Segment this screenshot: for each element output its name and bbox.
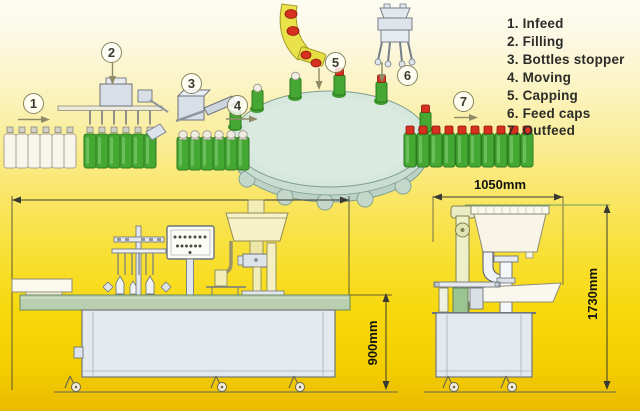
arrow-capping — [316, 68, 323, 90]
arrow-infeed — [18, 116, 50, 123]
filled-bottles — [84, 127, 156, 168]
legend-item-bottles-stopper: 3. Bottles stopper — [507, 51, 625, 69]
step-marker-3: 3 — [181, 73, 202, 94]
side-view-main-machine: 900mm — [12, 196, 398, 392]
production-line-diagram: 900mm 1050mm — [0, 0, 640, 411]
control-panel — [167, 226, 214, 296]
step-marker-7: 7 — [453, 91, 474, 112]
legend-item-capping: 5. Capping — [507, 87, 625, 105]
cap-chute — [280, 4, 326, 67]
dimension-1050mm-label: 1050mm — [474, 177, 526, 192]
step-marker-1: 1 — [23, 93, 44, 114]
filling-nozzles — [103, 226, 171, 296]
dimension-1730mm: 1730mm — [585, 204, 611, 390]
feeder-cabinet — [432, 313, 536, 377]
dimension-900mm-label: 900mm — [365, 321, 380, 366]
cap-feeder-machine — [375, 4, 415, 67]
legend-item-outfeed: 7. Outfeed — [507, 122, 625, 140]
machine-cabinet — [74, 310, 335, 377]
dimension-900mm: 900mm — [350, 293, 392, 390]
capping-unit — [206, 200, 288, 296]
legend-item-moving: 4. Moving — [507, 69, 625, 87]
step-marker-2: 2 — [101, 42, 122, 63]
step-marker-6: 6 — [397, 65, 418, 86]
legend-item-infeed: 1. Infeed — [507, 15, 625, 33]
legend-item-filling: 2. Filling — [507, 33, 625, 51]
infeed-bottles — [4, 127, 76, 168]
conveyor-table — [20, 295, 350, 310]
arrow-outfeed — [454, 114, 478, 121]
feeder-column-table — [434, 256, 561, 314]
legend-item-feed-caps: 6. Feed caps — [507, 105, 625, 123]
dimension-1730mm-label: 1730mm — [585, 268, 600, 320]
process-legend: 1. Infeed 2. Filling 3. Bottles stopper … — [507, 15, 625, 140]
filling-machine — [58, 78, 168, 125]
step-marker-5: 5 — [325, 52, 346, 73]
side-view-cap-feeder-machine: 1050mm — [424, 177, 616, 392]
step-marker-4: 4 — [227, 95, 248, 116]
